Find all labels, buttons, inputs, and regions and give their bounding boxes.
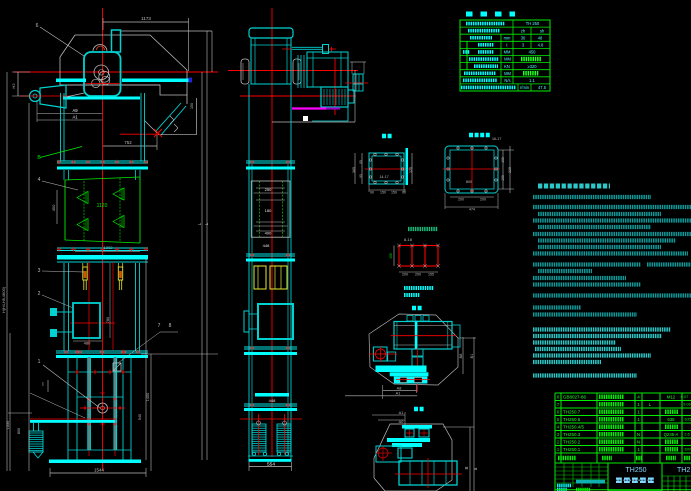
svg-text:1335: 1335 bbox=[6, 421, 10, 429]
svg-text:4: 4 bbox=[557, 424, 560, 429]
svg-text:MM: MM bbox=[504, 50, 511, 55]
svg-text:150: 150 bbox=[391, 191, 397, 195]
svg-text:A1: A1 bbox=[396, 392, 401, 396]
svg-text:14-17: 14-17 bbox=[379, 175, 388, 179]
svg-text:KN: KN bbox=[504, 64, 510, 69]
svg-text:A8: A8 bbox=[397, 387, 402, 391]
svg-text:95: 95 bbox=[359, 174, 363, 178]
svg-text:4: 4 bbox=[38, 177, 41, 183]
svg-text:TH250.3: TH250.3 bbox=[563, 432, 581, 437]
svg-text:100: 100 bbox=[501, 157, 505, 163]
svg-text:540: 540 bbox=[138, 414, 142, 420]
svg-text:9.06: 9.06 bbox=[683, 402, 691, 407]
svg-text:800: 800 bbox=[466, 180, 472, 184]
svg-text:200: 200 bbox=[402, 273, 408, 277]
svg-text:MM: MM bbox=[504, 57, 511, 62]
svg-text:150: 150 bbox=[190, 103, 194, 109]
svg-text:448: 448 bbox=[269, 398, 276, 403]
svg-text:180: 180 bbox=[265, 208, 272, 213]
svg-text:752: 752 bbox=[124, 140, 132, 145]
svg-text:30: 30 bbox=[521, 35, 526, 40]
svg-text:Q235-A: Q235-A bbox=[664, 432, 679, 437]
svg-text:48: 48 bbox=[538, 35, 543, 40]
svg-text:TH250.7: TH250.7 bbox=[563, 410, 581, 415]
svg-text:H(H4,H8,4K00): H(H4,H8,4K00) bbox=[2, 286, 6, 313]
svg-text:2.6: 2.6 bbox=[684, 432, 690, 437]
svg-text:155: 155 bbox=[428, 273, 434, 277]
svg-text:A0: A0 bbox=[399, 420, 404, 424]
svg-text:4.8: 4.8 bbox=[538, 42, 544, 47]
svg-text:600: 600 bbox=[685, 447, 691, 452]
svg-text:365: 365 bbox=[352, 167, 356, 173]
svg-text:8: 8 bbox=[557, 394, 560, 399]
svg-text:448: 448 bbox=[263, 243, 270, 248]
svg-text:A1: A1 bbox=[72, 115, 78, 120]
svg-text:3: 3 bbox=[557, 432, 560, 437]
svg-text:mm: mm bbox=[504, 35, 511, 40]
svg-text:450: 450 bbox=[529, 50, 537, 55]
svg-text:1544: 1544 bbox=[94, 468, 105, 473]
svg-text:2: 2 bbox=[557, 439, 560, 444]
svg-text:7: 7 bbox=[557, 402, 560, 407]
svg-text:TH250: TH250 bbox=[625, 467, 646, 474]
svg-text:250: 250 bbox=[265, 187, 272, 192]
svg-text:8-18: 8-18 bbox=[404, 237, 413, 242]
svg-text:7: 7 bbox=[158, 323, 161, 329]
svg-text:6: 6 bbox=[557, 409, 560, 414]
svg-text:5: 5 bbox=[557, 417, 560, 422]
svg-text:≥320: ≥320 bbox=[527, 64, 537, 69]
svg-text:1.1: 1.1 bbox=[529, 78, 535, 83]
svg-text:400: 400 bbox=[265, 231, 272, 236]
svg-text:1: 1 bbox=[38, 359, 41, 365]
svg-text:47.5: 47.5 bbox=[538, 85, 547, 90]
svg-text:TH 250: TH 250 bbox=[526, 21, 540, 26]
svg-text:6: 6 bbox=[36, 23, 39, 29]
svg-text:200: 200 bbox=[458, 198, 464, 202]
svg-text:1400: 1400 bbox=[146, 393, 150, 401]
svg-text:635: 635 bbox=[667, 417, 675, 422]
svg-text:TH250.1: TH250.1 bbox=[563, 447, 581, 452]
svg-text:3: 3 bbox=[38, 268, 41, 274]
svg-text:200: 200 bbox=[415, 273, 421, 277]
svg-text:155: 155 bbox=[389, 253, 393, 259]
svg-text:635: 635 bbox=[685, 417, 691, 422]
svg-text:I: I bbox=[42, 382, 43, 388]
svg-text:150: 150 bbox=[380, 191, 386, 195]
svg-text:zh: zh bbox=[521, 28, 526, 33]
svg-text:MM: MM bbox=[504, 71, 511, 76]
svg-text:r/min: r/min bbox=[520, 85, 530, 90]
svg-text:200: 200 bbox=[480, 198, 486, 202]
svg-text:N/s: N/s bbox=[504, 78, 510, 83]
svg-text:N: N bbox=[637, 432, 640, 437]
svg-text:A9: A9 bbox=[72, 108, 78, 113]
svg-text:TH250.6: TH250.6 bbox=[563, 417, 581, 422]
svg-text:1173: 1173 bbox=[141, 16, 151, 21]
svg-text:480: 480 bbox=[84, 341, 91, 346]
svg-text:B1: B1 bbox=[470, 354, 474, 359]
svg-text:N: N bbox=[637, 440, 640, 445]
svg-text:B: B bbox=[464, 466, 469, 469]
svg-text:GB8027-86: GB8027-86 bbox=[563, 395, 587, 400]
svg-text:sh: sh bbox=[540, 28, 545, 33]
svg-text:800: 800 bbox=[17, 428, 21, 434]
svg-text:100: 100 bbox=[501, 175, 505, 181]
svg-text:1120: 1120 bbox=[97, 203, 108, 209]
svg-text:554: 554 bbox=[267, 461, 275, 467]
svg-text:H2: H2 bbox=[11, 83, 16, 89]
svg-text:16-17: 16-17 bbox=[492, 137, 501, 141]
svg-text:TH250.4/5: TH250.4/5 bbox=[563, 425, 585, 430]
svg-text:95: 95 bbox=[359, 160, 363, 164]
svg-text:1: 1 bbox=[557, 447, 560, 452]
svg-text:450: 450 bbox=[51, 204, 56, 211]
svg-text:474: 474 bbox=[469, 208, 475, 212]
svg-text:TH250.2: TH250.2 bbox=[563, 440, 581, 445]
svg-text:8: 8 bbox=[169, 323, 172, 329]
svg-text:TH2: TH2 bbox=[677, 467, 690, 474]
svg-text:780: 780 bbox=[106, 317, 110, 323]
svg-text:320: 320 bbox=[409, 167, 413, 173]
svg-text:M12: M12 bbox=[667, 395, 676, 400]
svg-text:90: 90 bbox=[370, 191, 374, 195]
svg-text:320: 320 bbox=[508, 167, 512, 173]
svg-text:0.07: 0.07 bbox=[681, 394, 690, 399]
svg-text:2: 2 bbox=[38, 291, 41, 297]
svg-text:B8: B8 bbox=[459, 354, 463, 359]
svg-text:A1: A1 bbox=[399, 411, 404, 415]
